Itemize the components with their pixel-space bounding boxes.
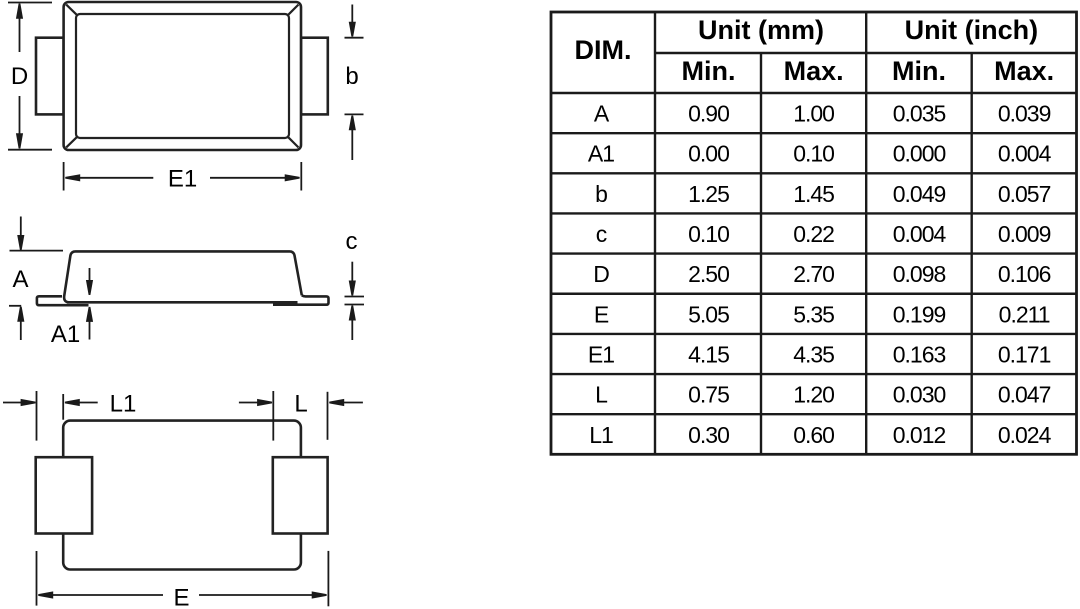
svg-text:E: E: [594, 301, 609, 327]
svg-text:A: A: [12, 266, 28, 293]
svg-text:1.00: 1.00: [793, 101, 834, 127]
svg-text:Unit (inch): Unit (inch): [905, 15, 1038, 45]
svg-text:A: A: [594, 101, 610, 127]
svg-text:0.106: 0.106: [998, 261, 1051, 287]
svg-text:E1: E1: [168, 166, 197, 193]
svg-text:2.70: 2.70: [793, 261, 834, 287]
svg-text:Unit (mm): Unit (mm): [698, 15, 824, 45]
svg-text:0.22: 0.22: [793, 221, 834, 247]
svg-text:0.004: 0.004: [893, 221, 947, 247]
svg-text:0.004: 0.004: [998, 141, 1052, 167]
svg-text:0.171: 0.171: [998, 342, 1051, 368]
svg-text:L1: L1: [110, 391, 137, 418]
svg-text:1.20: 1.20: [793, 382, 834, 408]
svg-text:0.75: 0.75: [688, 382, 729, 408]
svg-text:4.35: 4.35: [793, 342, 834, 368]
svg-text:DIM.: DIM.: [575, 35, 632, 65]
svg-text:0.90: 0.90: [688, 101, 729, 127]
svg-text:0.163: 0.163: [893, 342, 946, 368]
svg-text:Min.: Min.: [892, 56, 946, 86]
svg-text:5.35: 5.35: [793, 301, 834, 327]
svg-text:b: b: [595, 181, 607, 207]
svg-text:0.000: 0.000: [893, 141, 946, 167]
svg-text:L: L: [595, 382, 608, 408]
svg-text:0.049: 0.049: [893, 181, 946, 207]
svg-text:L1: L1: [589, 422, 613, 448]
svg-text:2.50: 2.50: [688, 261, 729, 287]
svg-text:1.25: 1.25: [688, 181, 729, 207]
svg-text:E: E: [173, 584, 189, 609]
svg-text:0.035: 0.035: [893, 101, 946, 127]
svg-text:0.047: 0.047: [998, 382, 1051, 408]
svg-text:0.030: 0.030: [893, 382, 946, 408]
svg-text:0.009: 0.009: [998, 221, 1051, 247]
svg-text:c: c: [346, 228, 358, 255]
svg-text:Max.: Max.: [994, 56, 1054, 86]
svg-text:0.199: 0.199: [893, 301, 946, 327]
svg-text:E1: E1: [588, 342, 614, 368]
svg-text:Max.: Max.: [784, 56, 844, 86]
svg-text:0.039: 0.039: [998, 101, 1051, 127]
svg-text:1.45: 1.45: [793, 181, 834, 207]
svg-text:5.05: 5.05: [688, 301, 729, 327]
svg-text:0.211: 0.211: [999, 301, 1050, 327]
svg-text:0.00: 0.00: [688, 141, 729, 167]
svg-text:0.30: 0.30: [688, 422, 729, 448]
svg-text:A1: A1: [51, 321, 80, 348]
svg-text:L: L: [294, 391, 307, 418]
svg-text:0.10: 0.10: [793, 141, 834, 167]
svg-text:0.60: 0.60: [793, 422, 834, 448]
svg-text:4.15: 4.15: [688, 342, 729, 368]
svg-text:A1: A1: [588, 141, 614, 167]
svg-text:0.012: 0.012: [893, 422, 946, 448]
svg-text:Min.: Min.: [682, 56, 736, 86]
svg-text:D: D: [11, 63, 28, 90]
svg-text:b: b: [345, 63, 358, 90]
svg-text:0.10: 0.10: [688, 221, 729, 247]
svg-text:0.098: 0.098: [893, 261, 946, 287]
svg-text:0.024: 0.024: [998, 422, 1052, 448]
svg-text:c: c: [596, 221, 607, 247]
svg-text:0.057: 0.057: [998, 181, 1051, 207]
svg-text:D: D: [593, 261, 609, 287]
